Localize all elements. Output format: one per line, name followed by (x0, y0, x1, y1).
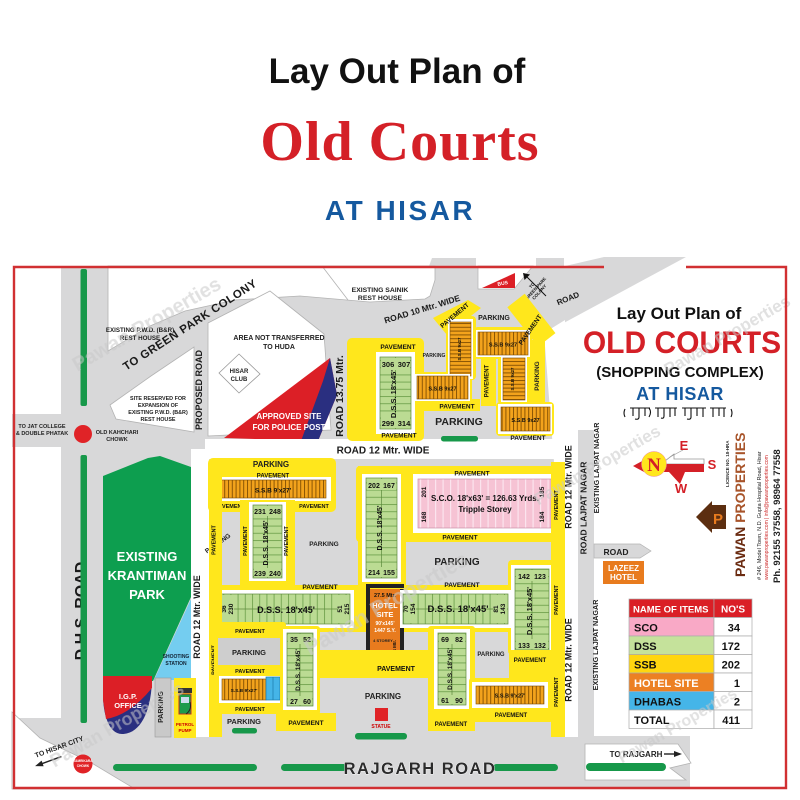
svg-text:PAVEMENT: PAVEMENT (212, 524, 218, 554)
svg-text:PAVEMENT: PAVEMENT (257, 474, 290, 480)
svg-text:82: 82 (455, 637, 463, 644)
svg-text:I.G.P.: I.G.P. (119, 692, 137, 701)
svg-text:239: 239 (254, 571, 266, 578)
svg-text:PAVEMENT: PAVEMENT (377, 666, 416, 673)
svg-text:SSB: SSB (634, 660, 657, 672)
svg-text:PARKING: PARKING (365, 692, 401, 701)
svg-text:Old Courts: Old Courts (260, 111, 539, 173)
svg-text:90: 90 (455, 698, 463, 705)
svg-text:PARKING: PARKING (227, 717, 261, 726)
svg-text:69: 69 (441, 637, 449, 644)
svg-text:STATION: STATION (165, 661, 187, 667)
svg-text:PAVEMENT: PAVEMENT (514, 658, 547, 664)
svg-text:D.S.S. 18'x45': D.S.S. 18'x45' (263, 520, 270, 565)
svg-text:307: 307 (398, 360, 411, 369)
svg-text:PAVEMENT: PAVEMENT (235, 669, 265, 675)
svg-text:PAVEMENT: PAVEMENT (442, 535, 477, 542)
svg-text:HISAR: HISAR (230, 369, 249, 375)
svg-text:CHOWK: CHOWK (106, 437, 127, 443)
svg-text:www.pawanproperties.com | info: www.pawanproperties.com | info@pawanprop… (764, 455, 770, 580)
svg-text:CHOWK: CHOWK (77, 764, 90, 768)
svg-text:PARK: PARK (129, 587, 165, 602)
svg-text:184: 184 (539, 511, 546, 522)
svg-text:NO'S: NO'S (721, 605, 745, 616)
svg-text:27: 27 (290, 699, 298, 706)
svg-text:PAVEMENT: PAVEMENT (235, 707, 265, 713)
svg-text:201: 201 (421, 486, 428, 497)
svg-text:LAZEEZ: LAZEEZ (608, 564, 639, 573)
svg-text:314: 314 (398, 419, 411, 428)
svg-text:SITE RESERVED FOR: SITE RESERVED FOR (130, 396, 186, 402)
svg-text:1: 1 (734, 678, 740, 690)
svg-text:PARKING: PARKING (423, 353, 446, 359)
svg-text:Lay Out Plan of: Lay Out Plan of (269, 52, 526, 91)
svg-text:411: 411 (722, 715, 740, 727)
svg-text:& DOUBLE PHATAK: & DOUBLE PHATAK (16, 431, 68, 437)
svg-text:SCO: SCO (634, 623, 658, 635)
svg-text:143: 143 (500, 603, 507, 614)
svg-text:PUMP: PUMP (178, 728, 191, 733)
svg-text:ROAD 12 Mtr. WIDE: ROAD 12 Mtr. WIDE (192, 575, 202, 659)
svg-text:155: 155 (383, 570, 395, 577)
svg-text:133: 133 (518, 643, 530, 650)
svg-text:154: 154 (410, 603, 417, 614)
svg-text:EXISTING: EXISTING (117, 549, 178, 564)
svg-text:1447 S.Y.: 1447 S.Y. (374, 628, 396, 634)
svg-text:S.S.B 9x27: S.S.B 9x27 (511, 418, 539, 424)
svg-text:PAVEMENT: PAVEMENT (485, 364, 491, 397)
svg-text:PAVEMENT: PAVEMENT (243, 525, 249, 555)
svg-text:OLD KAHCHARI: OLD KAHCHARI (96, 430, 139, 436)
svg-text:SHOOTING: SHOOTING (163, 654, 190, 660)
svg-text:306: 306 (382, 360, 395, 369)
svg-text:202: 202 (368, 483, 380, 490)
svg-text:D.S.S. 18'x45': D.S.S. 18'x45' (447, 648, 454, 690)
svg-text:TO HUDA: TO HUDA (263, 344, 295, 351)
svg-text:Lay Out Plan of: Lay Out Plan of (617, 304, 742, 323)
svg-text:ROAD 13.75 Mtr.: ROAD 13.75 Mtr. (334, 355, 346, 437)
svg-text:D.S.S. 18'x45': D.S.S. 18'x45' (427, 604, 488, 615)
svg-text:PAVEMENT: PAVEMENT (284, 525, 290, 555)
svg-text:4 STOREY: 4 STOREY (373, 638, 393, 643)
svg-text:35: 35 (290, 637, 298, 644)
svg-text:81: 81 (493, 605, 500, 613)
svg-text:REST HOUSE: REST HOUSE (140, 417, 175, 423)
svg-text:LICENCE NO. 18-HRA: LICENCE NO. 18-HRA (725, 440, 730, 487)
svg-text:P: P (713, 511, 723, 528)
svg-text:PAVEMENT: PAVEMENT (435, 722, 468, 728)
svg-text:DSS: DSS (634, 641, 657, 653)
svg-text:PARKING: PARKING (478, 315, 510, 322)
svg-text:142: 142 (518, 574, 530, 581)
svg-text:W: W (675, 481, 688, 496)
svg-text:132: 132 (534, 643, 546, 650)
svg-text:S.S.B 9x27: S.S.B 9x27 (489, 343, 517, 349)
svg-text:S.S.B 9x27: S.S.B 9x27 (510, 367, 515, 391)
svg-text:PETROL: PETROL (176, 722, 195, 727)
svg-text:EXPANSION OF: EXPANSION OF (138, 403, 179, 409)
svg-text:S: S (708, 457, 717, 472)
svg-text:230: 230 (228, 603, 235, 614)
svg-text:PAVEMENT: PAVEMENT (454, 471, 489, 478)
svg-text:PAVEMENT: PAVEMENT (288, 720, 323, 727)
svg-text:PAVEMENT: PAVEMENT (299, 504, 329, 510)
svg-text:REST HOUSE: REST HOUSE (358, 295, 403, 302)
svg-text:PARKING: PARKING (477, 652, 505, 658)
svg-text:TO JAT COLLEGE: TO JAT COLLEGE (18, 424, 65, 430)
svg-text:PARKING: PARKING (253, 460, 289, 469)
svg-text:PAVEMENT: PAVEMENT (554, 584, 560, 614)
svg-text:299: 299 (382, 419, 395, 428)
svg-text:HOTEL SITE: HOTEL SITE (634, 678, 699, 690)
svg-text:PARKING: PARKING (435, 416, 483, 428)
svg-text:RAJGARH ROAD: RAJGARH ROAD (344, 760, 497, 778)
svg-text:D.S.S. 18'x45': D.S.S. 18'x45' (525, 587, 534, 635)
svg-text:EXISTING LAJPAT NAGAR: EXISTING LAJPAT NAGAR (591, 599, 600, 691)
svg-text:51: 51 (337, 605, 344, 613)
svg-text:FOR POLICE POST: FOR POLICE POST (253, 423, 326, 432)
svg-text:ROAD: ROAD (603, 547, 628, 557)
svg-text:CLUB: CLUB (231, 377, 248, 383)
svg-text:34: 34 (728, 623, 741, 635)
svg-text:PAVEMENT: PAVEMENT (510, 435, 545, 442)
svg-text:36: 36 (221, 605, 228, 613)
svg-text:61: 61 (441, 698, 449, 705)
svg-text:S.S.B 9'x27': S.S.B 9'x27' (495, 694, 526, 700)
svg-text:PAVEMENT: PAVEMENT (235, 629, 265, 635)
svg-text:EXISTING SAINIK: EXISTING SAINIK (352, 287, 409, 294)
svg-text:168: 168 (421, 511, 428, 522)
svg-text:Ph. 92155 37558, 98964 77558: Ph. 92155 37558, 98964 77558 (772, 449, 783, 583)
svg-text:PAVEMENT: PAVEMENT (381, 433, 416, 440)
svg-text:# 246, Model Town, N.D. Gupta: # 246, Model Town, N.D. Gupta Hospital R… (757, 451, 763, 580)
svg-text:PARKING: PARKING (534, 361, 541, 391)
svg-text:S.S.B 9x27: S.S.B 9x27 (457, 337, 462, 361)
svg-text:PAVEMENT: PAVEMENT (380, 344, 415, 351)
svg-text:AT HISAR: AT HISAR (636, 384, 724, 404)
svg-text:S.S.B 9x27: S.S.B 9x27 (428, 387, 456, 393)
svg-text:60: 60 (303, 699, 311, 706)
svg-text:214: 214 (368, 570, 380, 577)
svg-text:PAVEMENT: PAVEMENT (495, 713, 528, 719)
svg-text:PAWAN PROPERTIES: PAWAN PROPERTIES (732, 433, 748, 577)
svg-text:APPROVED SITE: APPROVED SITE (257, 412, 323, 421)
svg-text:KRANTIMAN: KRANTIMAN (108, 568, 187, 583)
svg-text:PAVEMENT: PAVEMENT (439, 404, 474, 411)
svg-text:S.S.B 9'x27': S.S.B 9'x27' (231, 688, 258, 694)
svg-text:DHABAS: DHABAS (634, 697, 681, 709)
svg-text:202: 202 (722, 660, 740, 672)
svg-text:240: 240 (269, 571, 281, 578)
svg-text:PROPOSED ROAD: PROPOSED ROAD (194, 349, 204, 430)
svg-text:123: 123 (534, 574, 546, 581)
svg-text:D.S.S. 18'x45': D.S.S. 18'x45' (295, 649, 302, 691)
svg-text:Tripple Storey: Tripple Storey (458, 505, 512, 514)
svg-text:248: 248 (269, 509, 281, 516)
svg-text:167: 167 (383, 483, 395, 490)
svg-text:S.C.O. 18'x63' = 126.63 Yrds.: S.C.O. 18'x63' = 126.63 Yrds. (431, 494, 539, 503)
svg-text:N: N (647, 455, 661, 476)
svg-text:231: 231 (254, 509, 266, 516)
svg-text:PARKING: PARKING (309, 541, 339, 548)
svg-text:S.S.B 9'x27': S.S.B 9'x27' (255, 488, 292, 495)
svg-text:PAVEMENT: PAVEMENT (444, 582, 479, 589)
svg-text:D.S.S. 18'x45': D.S.S. 18'x45' (257, 605, 315, 615)
svg-text:EXISTING P.W.D. (B&R): EXISTING P.W.D. (B&R) (128, 410, 188, 416)
svg-text:ROAD 12 Mtr. WIDE: ROAD 12 Mtr. WIDE (337, 446, 430, 457)
svg-text:PAVEMENT: PAVEMENT (302, 584, 337, 591)
svg-text:D.S.S. 18'x45': D.S.S. 18'x45' (389, 370, 398, 418)
svg-text:PAVEMENT: PAVEMENT (554, 676, 560, 706)
svg-text:STATUE: STATUE (371, 724, 391, 730)
svg-text:AREA NOT TRANSFERRED: AREA NOT TRANSFERRED (233, 335, 324, 342)
svg-text:D.S.S. 18'x45': D.S.S. 18'x45' (377, 505, 384, 550)
svg-text:HOTEL: HOTEL (610, 573, 637, 582)
svg-text:PARKING: PARKING (232, 648, 266, 657)
svg-text:NAME OF ITEMS: NAME OF ITEMS (633, 605, 708, 616)
svg-text:172: 172 (722, 641, 740, 653)
svg-text:E: E (680, 438, 689, 453)
svg-text:AT HISAR: AT HISAR (325, 195, 475, 226)
